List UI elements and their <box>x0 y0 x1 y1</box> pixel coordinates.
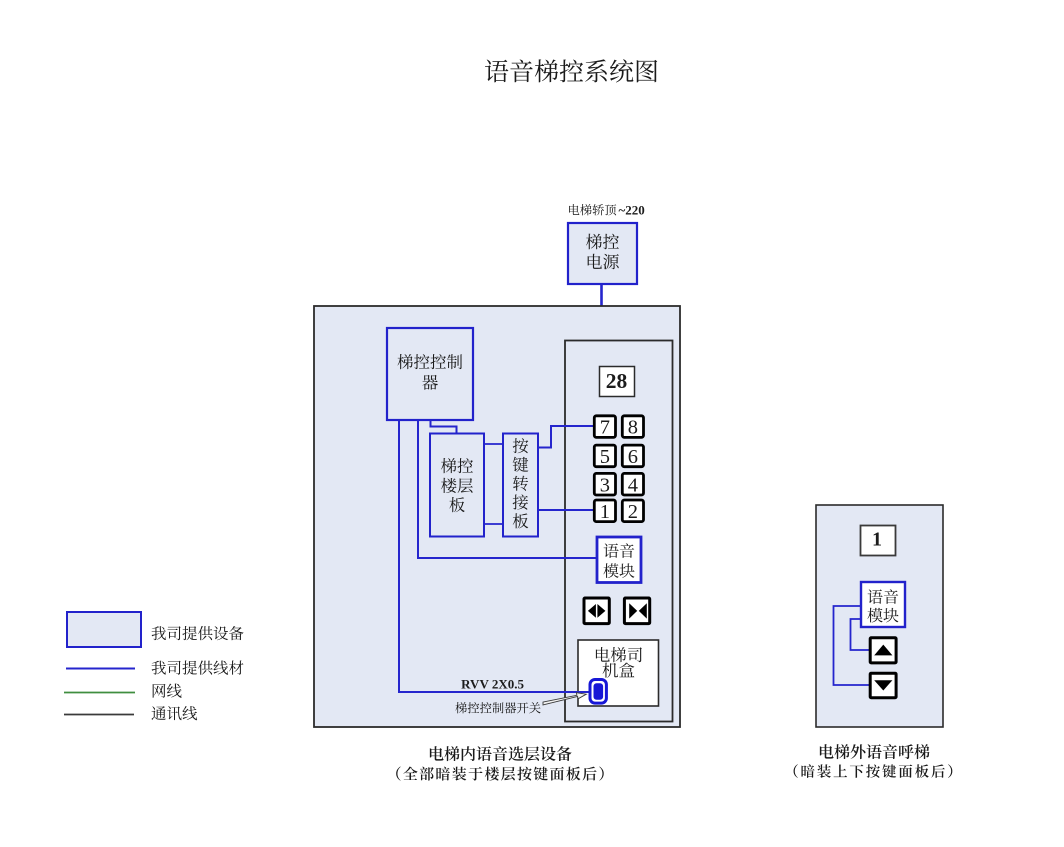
svg-text:1: 1 <box>872 528 882 550</box>
svg-text:2: 2 <box>628 501 638 523</box>
svg-text:28: 28 <box>606 369 628 393</box>
svg-text:3: 3 <box>600 474 610 496</box>
svg-text:6: 6 <box>628 446 638 468</box>
svg-text:1: 1 <box>600 501 610 523</box>
svg-text:8: 8 <box>628 417 638 439</box>
svg-text:5: 5 <box>600 446 610 468</box>
svg-text:4: 4 <box>628 474 638 496</box>
svg-text:~220: ~220 <box>619 203 645 218</box>
svg-text:7: 7 <box>600 417 610 439</box>
svg-text:RVV 2X0.5: RVV 2X0.5 <box>461 677 524 692</box>
